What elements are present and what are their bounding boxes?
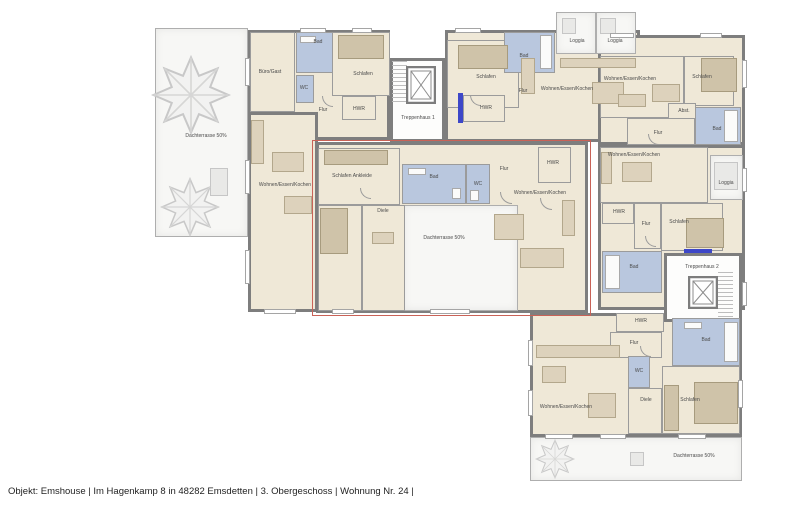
stair-step	[392, 101, 407, 102]
window	[245, 250, 250, 284]
room-label: Flur	[630, 340, 639, 346]
room-label: Dachterrasse 50%	[673, 453, 714, 459]
room-label: Wohnen/Essen/Kochen	[608, 152, 660, 158]
stair-step	[718, 280, 733, 281]
window	[600, 434, 626, 439]
window	[738, 380, 743, 408]
furniture	[694, 382, 738, 424]
furniture	[560, 58, 636, 68]
stair-step	[392, 85, 407, 86]
window	[742, 282, 747, 306]
furniture	[251, 120, 264, 164]
room-label: Flur	[519, 88, 528, 94]
furniture	[458, 45, 508, 69]
room-label: Schlafen	[680, 397, 699, 403]
window	[678, 434, 706, 439]
window	[300, 28, 326, 33]
window	[545, 434, 573, 439]
stair-step	[392, 93, 407, 94]
room-label: Treppenhaus 1	[401, 115, 434, 121]
window	[528, 340, 533, 366]
window	[245, 58, 250, 86]
furniture	[630, 452, 644, 466]
room-label: Bad	[314, 39, 323, 45]
room-label: Wohnen/Essen/Kochen	[540, 404, 592, 410]
furniture	[724, 322, 738, 362]
stair-step	[718, 304, 733, 305]
tree-icon	[160, 177, 220, 237]
furniture	[562, 18, 576, 34]
room-label: Bad	[520, 53, 529, 59]
stair-steps	[392, 61, 407, 105]
room-label: Flur	[319, 107, 328, 113]
room-label: Büro/Gast	[259, 69, 282, 75]
tree-icon	[535, 439, 575, 479]
window	[700, 33, 722, 38]
room-label: Abst.	[678, 108, 689, 114]
accent-bar	[458, 93, 463, 123]
stair-step	[718, 312, 733, 313]
footer-caption: Objekt: Emshouse | Im Hagenkamp 8 in 482…	[8, 486, 414, 497]
room-label: HWR	[480, 105, 492, 111]
room-label: Wohnen/Essen/Kochen	[259, 182, 311, 188]
floor-plan-page: Dachterrasse 50%Büro/GastBadWCSchlafenHW…	[0, 0, 800, 515]
floor-plan: Dachterrasse 50%Büro/GastBadWCSchlafenHW…	[0, 0, 800, 500]
window	[742, 168, 747, 192]
window	[245, 160, 250, 194]
room-label: Bad	[713, 126, 722, 132]
stair-steps	[718, 272, 733, 318]
furniture	[724, 110, 738, 142]
window	[455, 28, 481, 33]
stair-step	[392, 69, 407, 70]
stair-step	[392, 61, 407, 62]
stair-step	[392, 65, 407, 66]
furniture	[652, 84, 680, 102]
furniture	[588, 393, 616, 418]
elevator-icon	[406, 66, 436, 104]
furniture	[272, 152, 304, 172]
stair-step	[718, 284, 733, 285]
stair-step	[718, 276, 733, 277]
stair-step	[718, 296, 733, 297]
window	[742, 60, 747, 88]
stair-step	[718, 272, 733, 273]
accent-bar	[684, 249, 712, 253]
room-label: Wohnen/Essen/Kochen	[604, 76, 656, 82]
room-label: Schlafen	[353, 71, 372, 77]
window	[352, 28, 372, 33]
elevator-icon	[688, 276, 718, 309]
window	[528, 390, 533, 416]
room-label: Flur	[642, 221, 651, 227]
room-label: HWR	[635, 318, 647, 324]
room-label: Treppenhaus 2	[685, 264, 718, 270]
furniture	[540, 35, 552, 69]
room-label: WC	[635, 368, 643, 374]
furniture	[622, 162, 652, 182]
stair-step	[392, 77, 407, 78]
furniture	[618, 94, 646, 107]
room-label: Loggia	[718, 180, 733, 186]
room-label: Flur	[654, 130, 663, 136]
stair-step	[718, 288, 733, 289]
furniture	[600, 18, 616, 34]
room-label: Bad	[630, 264, 639, 270]
room-label: Dachterrasse 50%	[185, 133, 226, 139]
furniture	[542, 366, 566, 383]
furniture	[605, 255, 620, 289]
furniture	[684, 322, 702, 329]
room-label: HWR	[353, 106, 365, 112]
furniture	[284, 196, 312, 214]
room	[628, 388, 662, 434]
apartment-highlight	[312, 140, 591, 316]
stair-step	[392, 97, 407, 98]
room-label: HWR	[613, 209, 625, 215]
furniture	[686, 218, 724, 248]
room-label: Wohnen/Essen/Kochen	[541, 86, 593, 92]
stair-step	[718, 308, 733, 309]
stair-step	[392, 73, 407, 74]
room-label: Diele	[640, 397, 651, 403]
furniture	[664, 385, 679, 431]
stair-step	[718, 316, 733, 317]
room-label: Loggia	[607, 38, 622, 44]
tree-icon	[151, 55, 231, 135]
furniture	[338, 35, 384, 59]
stair-step	[718, 292, 733, 293]
room-label: Loggia	[569, 38, 584, 44]
room-label: WC	[300, 85, 308, 91]
stair-step	[392, 81, 407, 82]
room-label: Schlafen	[476, 74, 495, 80]
window	[264, 309, 296, 314]
furniture	[536, 345, 620, 358]
room-label: Schlafen	[669, 219, 688, 225]
stair-step	[392, 89, 407, 90]
room-label: Schlafen	[692, 74, 711, 80]
room-label: Bad	[702, 337, 711, 343]
stair-step	[718, 300, 733, 301]
